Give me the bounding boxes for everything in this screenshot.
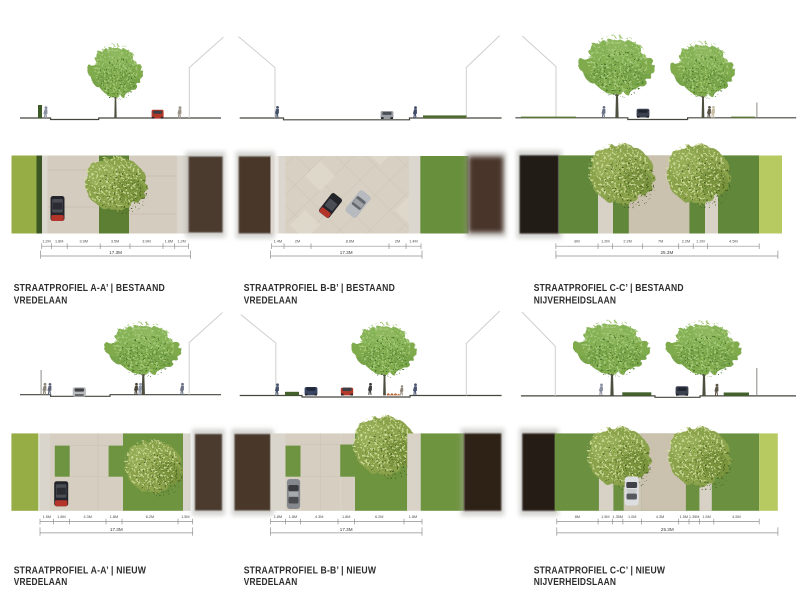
svg-text:1.8M: 1.8M [165,240,173,244]
svg-text:8M: 8M [575,515,580,519]
svg-text:1.2M: 1.2M [42,240,50,244]
svg-text:2.2M: 2.2M [682,240,690,244]
svg-text:2.2M: 2.2M [623,240,631,244]
svg-text:1.8M: 1.8M [110,515,118,519]
svg-text:STRAATPROFIEL B-B’ | BESTAAND: STRAATPROFIEL B-B’ | BESTAAND [244,282,395,294]
svg-text:1.2M: 1.2M [696,240,704,244]
svg-text:1.35M: 1.35M [689,515,700,519]
svg-text:VREDELAAN: VREDELAAN [244,295,298,307]
svg-text:1.8M: 1.8M [55,240,63,244]
svg-text:VREDELAAN: VREDELAAN [14,576,68,588]
svg-text:2M: 2M [295,240,300,244]
svg-text:7M: 7M [658,240,663,244]
svg-text:1.2M: 1.2M [601,240,609,244]
svg-text:1.0M: 1.0M [628,515,636,519]
svg-text:NIJVERHEIDSLAAN: NIJVERHEIDSLAAN [534,295,617,307]
svg-text:STRAATPROFIEL C-C’ | NIEUW: STRAATPROFIEL C-C’ | NIEUW [534,565,666,577]
svg-text:1.8M: 1.8M [274,515,282,519]
svg-text:25.3M: 25.3M [661,250,674,255]
svg-text:1.8M: 1.8M [342,515,350,519]
svg-text:6.2M: 6.2M [375,515,383,519]
svg-text:NIJVERHEIDSLAAN: NIJVERHEIDSLAAN [534,576,617,588]
svg-text:25.3M: 25.3M [661,527,674,532]
svg-text:3.9M: 3.9M [79,240,87,244]
svg-text:1.8M: 1.8M [289,515,297,519]
svg-text:17.3M: 17.3M [340,527,353,532]
svg-text:1.4M: 1.4M [409,240,417,244]
svg-text:4.3M: 4.3M [315,515,323,519]
svg-text:17.3M: 17.3M [340,250,353,255]
svg-text:3.5M: 3.5M [111,240,119,244]
svg-text:1.35M: 1.35M [612,515,623,519]
svg-text:2M: 2M [395,240,400,244]
svg-text:4.5M: 4.5M [732,515,740,519]
svg-text:17.3M: 17.3M [110,527,123,532]
svg-text:1.5M: 1.5M [702,515,710,519]
svg-text:1.5M: 1.5M [601,515,609,519]
svg-text:8M: 8M [574,240,579,244]
svg-text:4.3M: 4.3M [83,515,91,519]
svg-text:STRAATPROFIEL B-B’ | NIEUW: STRAATPROFIEL B-B’ | NIEUW [244,565,377,577]
svg-text:1.8M: 1.8M [409,515,417,519]
svg-text:1.2M: 1.2M [177,240,185,244]
svg-text:8.6M: 8.6M [346,240,354,244]
svg-text:VREDELAAN: VREDELAAN [14,295,68,307]
svg-text:STRAATPROFIEL A-A’ | NIEUW: STRAATPROFIEL A-A’ | NIEUW [14,565,147,577]
svg-text:1.4M: 1.4M [274,240,282,244]
svg-text:1.5M: 1.5M [181,515,189,519]
svg-text:3.9M: 3.9M [142,240,150,244]
svg-text:6.2M: 6.2M [146,515,154,519]
svg-text:STRAATPROFIEL C-C’ | BESTAAND: STRAATPROFIEL C-C’ | BESTAAND [534,282,684,294]
svg-text:4.3M: 4.3M [656,515,664,519]
svg-text:1.5M: 1.5M [43,515,51,519]
svg-text:1.5M: 1.5M [680,515,688,519]
svg-text:1.8M: 1.8M [57,515,65,519]
svg-text:VREDELAAN: VREDELAAN [244,576,298,588]
svg-text:4.5M: 4.5M [729,240,737,244]
svg-text:17.3M: 17.3M [109,250,122,255]
svg-text:STRAATPROFIEL A-A’ | BESTAAND: STRAATPROFIEL A-A’ | BESTAAND [14,282,165,294]
